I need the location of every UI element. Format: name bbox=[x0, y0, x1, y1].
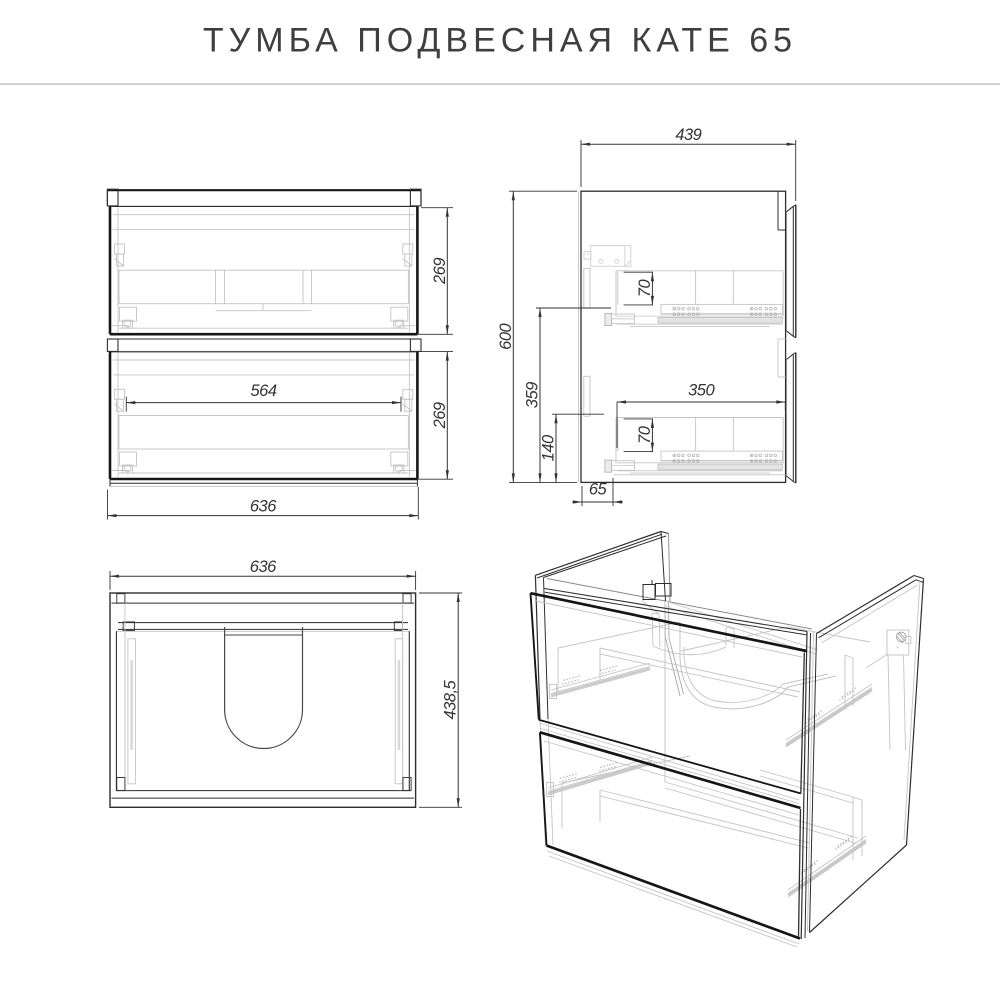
svg-text:600: 600 bbox=[497, 322, 515, 349]
svg-text:269: 269 bbox=[431, 402, 449, 429]
svg-text:ТУМБА ПОДВЕСНАЯ КАТЕ 65: ТУМБА ПОДВЕСНАЯ КАТЕ 65 bbox=[203, 22, 797, 60]
svg-text:564: 564 bbox=[250, 382, 276, 400]
svg-text:140: 140 bbox=[540, 434, 558, 461]
svg-text:70: 70 bbox=[636, 279, 654, 298]
svg-text:439: 439 bbox=[675, 126, 701, 144]
svg-text:350: 350 bbox=[688, 381, 715, 399]
svg-text:70: 70 bbox=[636, 425, 654, 444]
svg-text:438,5: 438,5 bbox=[442, 679, 460, 719]
svg-text:269: 269 bbox=[431, 258, 449, 285]
svg-text:636: 636 bbox=[250, 558, 277, 576]
svg-text:65: 65 bbox=[589, 481, 608, 499]
svg-text:359: 359 bbox=[524, 382, 542, 408]
svg-text:636: 636 bbox=[250, 498, 277, 516]
